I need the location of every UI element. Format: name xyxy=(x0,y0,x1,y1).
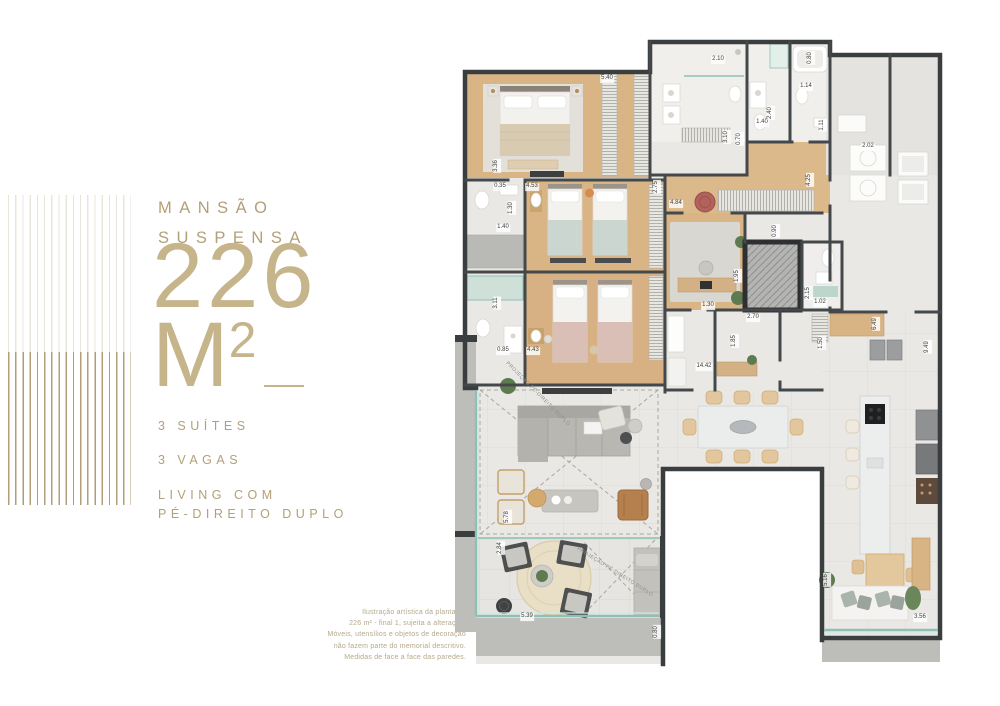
area-unit-exponent: 2 xyxy=(229,317,257,363)
plan-title-line1: MANSÃO xyxy=(158,194,308,224)
lavabo xyxy=(802,242,842,310)
feature-item: 3 SUÍTES xyxy=(158,417,348,436)
feature-item: 3 VAGAS xyxy=(158,451,348,470)
disclaimer-line: Ilustração artística da planta de xyxy=(318,607,466,618)
decorative-vertical-lines xyxy=(8,195,131,505)
disclaimer-line: Medidas de face a face das paredes. xyxy=(318,652,466,663)
area-unit: M xyxy=(152,313,229,398)
disclaimer-line: não fazem parte do memorial descritivo. xyxy=(318,641,466,652)
area-underscore xyxy=(264,385,304,387)
disclaimer-text: Ilustração artística da planta de226 m² … xyxy=(318,607,466,663)
feature-item: LIVING COM PÉ-DIREITO DUPLO xyxy=(158,486,348,525)
area-figure: 226 M 2 xyxy=(152,234,318,397)
master-bedroom xyxy=(483,84,583,177)
floor-plan-drawing xyxy=(450,30,950,670)
brochure-page: MANSÃO SUSPENSA 226 M 2 3 SUÍTES3 VAGASL… xyxy=(0,0,1000,706)
disclaimer-line: Móveis, utensílios e objetos de decoraçã… xyxy=(318,629,466,640)
elevator-shaft xyxy=(745,242,800,310)
decorative-lines-bottom xyxy=(8,352,131,505)
office-nook xyxy=(670,222,747,305)
decorative-lines-top xyxy=(8,195,131,352)
feature-list: 3 SUÍTES3 VAGASLIVING COM PÉ-DIREITO DUP… xyxy=(158,417,348,540)
floor-plan: PROJEÇÃO PÉ-DIREITO DUPLOPROJEÇÃO PÉ-DIR… xyxy=(450,30,950,670)
disclaimer-line: 226 m² - final 1, sujeita a alteração. xyxy=(318,618,466,629)
